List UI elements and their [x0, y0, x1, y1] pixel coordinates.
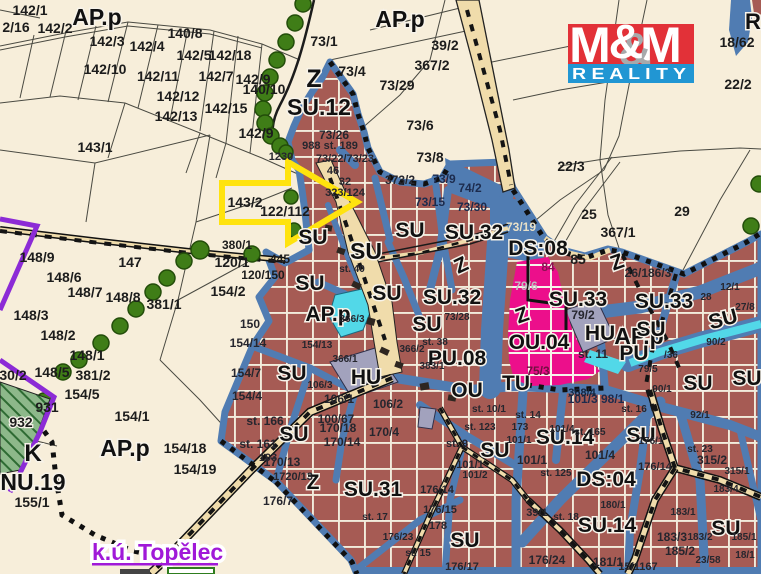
svg-text:Z: Z [306, 65, 321, 93]
svg-text:183/3: 183/3 [657, 530, 687, 544]
svg-text:SU.14: SU.14 [578, 514, 637, 537]
svg-text:154/2: 154/2 [210, 283, 245, 299]
svg-text:154/4: 154/4 [232, 389, 262, 403]
svg-text:73/1: 73/1 [310, 33, 337, 49]
svg-text:1720/13: 1720/13 [273, 471, 313, 483]
svg-text:101/4: 101/4 [585, 448, 615, 462]
svg-text:185/2: 185/2 [665, 544, 695, 558]
svg-text:DS:08: DS:08 [508, 237, 568, 260]
svg-text:193: 193 [259, 452, 277, 464]
svg-text:380/1: 380/1 [222, 238, 252, 252]
svg-text:178: 178 [429, 520, 447, 532]
svg-text:73/28: 73/28 [444, 312, 469, 323]
svg-text:142/11: 142/11 [137, 68, 179, 84]
svg-text:185/1: 185/1 [731, 532, 756, 543]
svg-text:101/4: 101/4 [549, 424, 574, 435]
svg-text:SU.32: SU.32 [423, 286, 481, 309]
svg-text:142/10: 142/10 [84, 61, 127, 77]
svg-text:st. 18: st. 18 [553, 512, 579, 523]
svg-text:R: R [745, 9, 761, 34]
svg-text:143/2: 143/2 [227, 194, 262, 210]
svg-text:SU: SU [480, 439, 509, 462]
svg-text:106/1: 106/1 [324, 392, 354, 406]
svg-text:383/1: 383/1 [419, 361, 444, 372]
svg-text:SU: SU [350, 238, 382, 264]
svg-text:SU: SU [683, 372, 712, 395]
svg-text:&: & [609, 16, 644, 69]
svg-text:18/1: 18/1 [735, 550, 755, 561]
svg-text:170/18: 170/18 [320, 421, 357, 435]
svg-text:st. 10/1: st. 10/1 [472, 404, 506, 415]
svg-text:22/3: 22/3 [557, 158, 584, 174]
svg-text:st. 40: st. 40 [339, 264, 365, 275]
svg-text:381/1: 381/1 [146, 296, 181, 312]
svg-text:2/16: 2/16 [2, 19, 29, 35]
svg-text:73/8: 73/8 [416, 149, 443, 165]
svg-text:SU: SU [732, 367, 761, 390]
svg-text:154/18: 154/18 [164, 440, 207, 456]
svg-text:142/2: 142/2 [37, 20, 72, 36]
svg-text:154/14: 154/14 [230, 336, 267, 350]
svg-text:120/150: 120/150 [241, 268, 285, 282]
svg-text:st. 11: st. 11 [578, 347, 608, 361]
svg-text:445: 445 [270, 252, 290, 266]
svg-text:176/14: 176/14 [638, 461, 673, 473]
svg-text:12/1: 12/1 [720, 282, 740, 293]
svg-text:73/22/73/23: 73/22/73/23 [316, 153, 374, 165]
svg-text:79/2: 79/2 [571, 308, 595, 322]
svg-text:154/5: 154/5 [64, 386, 99, 402]
svg-text:84: 84 [541, 260, 555, 274]
svg-text:/36: /36 [664, 350, 678, 361]
svg-text:AP.p: AP.p [375, 6, 424, 32]
svg-text:k.ú. Topělec: k.ú. Topělec [92, 539, 223, 565]
svg-text:39/1: 39/1 [526, 507, 547, 519]
svg-text:366/3: 366/3 [339, 314, 364, 325]
svg-text:st. 23: st. 23 [687, 444, 713, 455]
svg-text:HU: HU [351, 366, 381, 389]
svg-text:AP.p: AP.p [72, 4, 121, 30]
svg-text:154/13: 154/13 [302, 340, 333, 351]
svg-text:101/2: 101/2 [462, 470, 487, 481]
svg-text:988 st. 189: 988 st. 189 [302, 140, 358, 152]
svg-text:st. 123: st. 123 [464, 422, 496, 433]
svg-text:155/1: 155/1 [14, 494, 49, 510]
svg-text:932: 932 [9, 414, 33, 430]
svg-text:25: 25 [581, 206, 597, 222]
svg-text:170/14: 170/14 [324, 435, 361, 449]
svg-text:15/1167: 15/1167 [618, 561, 657, 573]
svg-text:73/30: 73/30 [457, 200, 487, 214]
svg-text:SU.31: SU.31 [344, 478, 403, 501]
svg-text:148/5: 148/5 [34, 364, 69, 380]
svg-text:30/2: 30/2 [0, 367, 27, 383]
svg-text:22/2: 22/2 [724, 76, 751, 92]
svg-text:SU: SU [277, 362, 306, 385]
svg-text:142/9: 142/9 [238, 125, 273, 141]
svg-text:st. 165: st. 165 [574, 427, 606, 438]
svg-text:154/19: 154/19 [174, 461, 217, 477]
svg-text:183/1: 183/1 [670, 507, 695, 518]
svg-text:148/9: 148/9 [19, 249, 54, 265]
svg-text:26/186/3: 26/186/3 [625, 266, 672, 280]
svg-text:148/6: 148/6 [46, 269, 81, 285]
svg-text:176/17: 176/17 [445, 561, 479, 573]
svg-text:142/7: 142/7 [198, 68, 233, 84]
svg-text:SU: SU [279, 423, 308, 446]
svg-text:142/18: 142/18 [209, 47, 252, 63]
svg-text:101/1: 101/1 [517, 453, 547, 467]
svg-text:101/1: 101/1 [506, 435, 531, 446]
svg-text:148/3: 148/3 [13, 307, 48, 323]
svg-text:AP.p: AP.p [100, 435, 149, 461]
svg-text:368/4: 368/4 [568, 387, 596, 399]
svg-text:73/15: 73/15 [415, 195, 445, 209]
svg-text:73/4: 73/4 [338, 63, 365, 79]
svg-text:147: 147 [118, 254, 142, 270]
svg-text:142/13: 142/13 [155, 108, 198, 124]
svg-text:79/5: 79/5 [638, 364, 658, 375]
svg-text:170/4: 170/4 [369, 425, 399, 439]
svg-text:18/62: 18/62 [719, 34, 754, 50]
svg-text:73/6: 73/6 [406, 117, 433, 133]
svg-text:st. 15: st. 15 [405, 548, 431, 559]
svg-text:27/8: 27/8 [735, 302, 755, 313]
svg-text:148/2: 148/2 [40, 327, 75, 343]
svg-text:st. 166: st. 166 [246, 414, 284, 428]
svg-text:931: 931 [35, 399, 59, 415]
svg-text:85: 85 [570, 251, 586, 267]
svg-text:74/2: 74/2 [458, 181, 482, 195]
svg-text:st. 9: st. 9 [446, 438, 468, 450]
svg-text:75/3: 75/3 [526, 364, 550, 378]
svg-text:SU: SU [636, 318, 665, 341]
svg-text:323/124: 323/124 [325, 187, 366, 199]
svg-text:OU.04: OU.04 [509, 331, 570, 354]
svg-text:39/2: 39/2 [431, 37, 458, 53]
svg-text:148/7: 148/7 [67, 284, 102, 300]
svg-text:SU: SU [412, 313, 441, 336]
svg-text:150: 150 [240, 317, 260, 331]
svg-text:183/4: 183/4 [713, 484, 738, 495]
svg-text:SU: SU [295, 272, 324, 295]
svg-text:SU: SU [395, 219, 424, 242]
svg-text:90/2: 90/2 [706, 337, 726, 348]
svg-text:SU.32: SU.32 [445, 221, 503, 244]
svg-text:73/29: 73/29 [379, 77, 414, 93]
svg-text:90/1: 90/1 [652, 384, 672, 395]
svg-text:142/5: 142/5 [176, 47, 211, 63]
svg-text:DS:04: DS:04 [576, 468, 636, 491]
svg-text:176/24: 176/24 [529, 553, 566, 567]
svg-text:315/1: 315/1 [724, 466, 749, 477]
svg-text:381/2: 381/2 [75, 367, 110, 383]
svg-text:142/1: 142/1 [12, 2, 47, 18]
svg-text:23/58: 23/58 [695, 555, 720, 566]
svg-text:176/15: 176/15 [423, 504, 457, 516]
svg-text:st. 125: st. 125 [540, 468, 572, 479]
svg-text:143/1: 143/1 [77, 139, 112, 155]
svg-text:148/1: 148/1 [69, 347, 104, 363]
svg-text:106/3: 106/3 [307, 380, 332, 391]
svg-text:OU: OU [451, 379, 483, 402]
svg-text:1230: 1230 [269, 151, 293, 163]
svg-text:29: 29 [674, 203, 690, 219]
svg-text:367/2: 367/2 [414, 57, 449, 73]
svg-text:92/1: 92/1 [690, 410, 710, 421]
svg-text:366/1: 366/1 [332, 354, 357, 365]
svg-text:106/2: 106/2 [373, 397, 403, 411]
svg-text:SU: SU [450, 529, 479, 552]
svg-text:R E A L I T Y: R E A L I T Y [572, 66, 686, 83]
svg-text:366/2: 366/2 [399, 344, 424, 355]
svg-text:PU: PU [619, 342, 648, 365]
svg-text:142/3: 142/3 [89, 33, 124, 49]
svg-text:SU.12: SU.12 [287, 94, 351, 120]
svg-text:SU.33: SU.33 [635, 290, 693, 313]
svg-text:122/112: 122/112 [260, 203, 310, 219]
svg-text:173: 173 [512, 422, 529, 433]
svg-text:176/23: 176/23 [383, 532, 414, 543]
svg-text:176/14: 176/14 [420, 484, 455, 496]
svg-text:140/10: 140/10 [243, 81, 286, 97]
svg-text:176/1: 176/1 [638, 436, 663, 447]
svg-text:79/6: 79/6 [514, 279, 538, 293]
svg-text:315/2: 315/2 [697, 453, 727, 467]
svg-text:SU: SU [372, 282, 401, 305]
svg-text:142/12: 142/12 [157, 88, 200, 104]
svg-text:154/1: 154/1 [114, 408, 149, 424]
svg-text:373/2: 373/2 [385, 173, 415, 187]
svg-text:183/2: 183/2 [687, 532, 712, 543]
svg-text:K: K [24, 440, 42, 467]
svg-text:st. 161: st. 161 [239, 437, 277, 451]
svg-text:46: 46 [327, 165, 339, 177]
svg-text:154/7: 154/7 [231, 366, 261, 380]
svg-text:180/1: 180/1 [600, 500, 625, 511]
svg-text:HU: HU [585, 322, 615, 345]
svg-text:st. 38: st. 38 [422, 337, 448, 348]
svg-text:st. 14: st. 14 [515, 410, 541, 421]
svg-text:148/8: 148/8 [105, 289, 140, 305]
svg-text:367/1: 367/1 [600, 224, 635, 240]
svg-text:st. 16: st. 16 [621, 404, 647, 415]
svg-text:176/7: 176/7 [263, 494, 293, 508]
svg-text:73/19: 73/19 [506, 220, 536, 234]
svg-text:142/4: 142/4 [129, 38, 164, 54]
svg-text:73/9: 73/9 [432, 172, 456, 186]
svg-text:st. 17: st. 17 [362, 512, 388, 523]
svg-text:142/15: 142/15 [205, 100, 248, 116]
svg-text:28: 28 [700, 292, 712, 303]
svg-text:SU: SU [298, 226, 327, 249]
svg-text:140/8: 140/8 [167, 25, 202, 41]
svg-text:NU.19: NU.19 [0, 469, 65, 495]
